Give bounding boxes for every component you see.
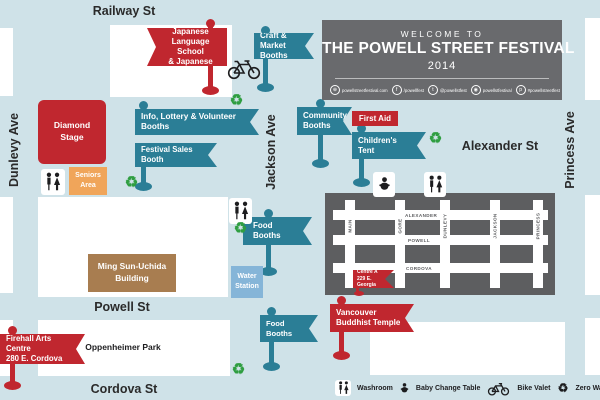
flag-firehall-arts-centre: Firehall Arts Centre 280 E. Cordova bbox=[0, 334, 85, 364]
flag-community-booths: Community Booths bbox=[297, 107, 352, 135]
water-station: Water Station bbox=[231, 266, 263, 298]
street-label-alexander: Alexander St bbox=[462, 139, 538, 153]
baby-change-icon bbox=[373, 172, 395, 197]
area-label: Ming Sun-Uchida bbox=[88, 261, 176, 273]
flag-text: Info, Lottery & Volunteer Booths bbox=[141, 112, 247, 133]
recycle-icon: ♻ bbox=[232, 220, 249, 237]
inset-neighbourhood-map: ALEXANDER POWELL CORDOVA MAIN GORE DUNLE… bbox=[325, 193, 555, 295]
bike-valet-icon bbox=[227, 57, 261, 80]
street-label-princess: Princess Ave bbox=[563, 111, 577, 189]
inset-street-label: DUNLEVY bbox=[443, 214, 448, 239]
flag-text: 229 E. Georgia bbox=[357, 276, 386, 290]
bike-valet-icon bbox=[486, 381, 511, 396]
festival-year: 2014 bbox=[322, 60, 562, 72]
flag-food-booths-lower: Food Booths bbox=[260, 315, 318, 342]
flag-centre-a: Centre A 229 E. Georgia bbox=[353, 270, 394, 288]
facebook-icon: f bbox=[392, 85, 402, 95]
flag-text: Buddhist Temple bbox=[336, 318, 402, 328]
inset-street-label: CORDOVA bbox=[406, 266, 432, 271]
legend-label: Zero Waste Station bbox=[575, 385, 600, 392]
recycle-icon: ♻ bbox=[427, 130, 444, 147]
inset-street-label: POWELL bbox=[408, 238, 430, 243]
washroom-icon bbox=[335, 380, 351, 396]
flag-text: Food Booths bbox=[266, 319, 306, 338]
hashtag-text: #powellstreetfest bbox=[528, 88, 560, 93]
diamond-stage: Diamond Stage bbox=[38, 100, 106, 164]
oppenheimer-park-label: Oppenheimer Park bbox=[85, 342, 161, 352]
flag-text: First Aid bbox=[359, 114, 391, 124]
flag-text: Vancouver bbox=[336, 308, 402, 318]
inset-street-label: GORE bbox=[398, 218, 403, 233]
street-label-cordova: Cordova St bbox=[91, 382, 158, 396]
inset-street-label: MAIN bbox=[348, 219, 353, 232]
hashtag-icon: p bbox=[516, 85, 526, 95]
city-block bbox=[0, 197, 13, 293]
flag-vancouver-buddhist-temple: Vancouver Buddhist Temple bbox=[330, 304, 414, 332]
flag-craft-market-booths: Craft & Market Booths bbox=[254, 33, 314, 59]
legend-label: Washroom bbox=[357, 385, 393, 392]
zero-waste-icon: ♻ bbox=[556, 381, 569, 395]
inset-street-label: JACKSON bbox=[493, 213, 498, 238]
area-label: Water bbox=[231, 272, 263, 282]
flag-food-booths-upper: Food Booths bbox=[243, 217, 312, 245]
inset-street-label: ALEXANDER bbox=[405, 213, 437, 218]
flag-japanese-language-school: Vancouver Japanese Language School & Jap… bbox=[147, 28, 227, 66]
recycle-icon: ♻ bbox=[228, 92, 245, 109]
divider bbox=[335, 78, 549, 79]
legend-label: Bike Valet bbox=[517, 385, 550, 392]
website-link: ⊕powellstreetfestival.com bbox=[330, 85, 388, 95]
twitter-icon: t bbox=[428, 85, 438, 95]
facebook-text: /powellfest bbox=[404, 88, 424, 93]
flag-text: 280 E. Cordova bbox=[6, 354, 73, 364]
street-label-jackson: Jackson Ave bbox=[264, 114, 278, 190]
website-text: powellstreetfestival.com bbox=[342, 88, 388, 93]
ming-sun-uchida-building: Ming Sun-Uchida Building bbox=[88, 254, 176, 292]
street-label-powell: Powell St bbox=[94, 300, 150, 314]
welcome-text: WELCOME TO bbox=[322, 29, 562, 39]
street-label-dunlevy: Dunlevy Ave bbox=[7, 113, 21, 187]
area-label: Stage bbox=[38, 132, 106, 144]
city-block bbox=[0, 28, 13, 96]
inset-street bbox=[395, 200, 405, 288]
map-legend: Washroom Baby Change Table Bike Valet ♻ … bbox=[335, 379, 600, 397]
area-label: Area bbox=[69, 181, 107, 191]
web-icon: ⊕ bbox=[330, 85, 340, 95]
washroom-icon bbox=[424, 172, 446, 197]
instagram-link: ◉powellstfestival bbox=[471, 85, 512, 95]
hashtag-link: p#powellstreetfest bbox=[516, 85, 560, 95]
area-label: Station bbox=[231, 282, 263, 292]
seniors-area: Seniors Area bbox=[69, 167, 107, 195]
flag-festival-sales-booth: Festival Sales Booth bbox=[135, 143, 217, 167]
city-block bbox=[585, 318, 600, 375]
flag-info-lottery-volunteer-booths: Info, Lottery & Volunteer Booths bbox=[135, 109, 259, 135]
legend-label: Baby Change Table bbox=[416, 385, 480, 392]
recycle-icon: ♻ bbox=[123, 174, 140, 191]
flag-text: Booths bbox=[303, 121, 340, 131]
flag-text: Craft & Market bbox=[260, 31, 302, 51]
flag-text: Children's Tent bbox=[358, 136, 414, 156]
twitter-text: @powellstfest bbox=[440, 88, 467, 93]
twitter-link: t@powellstfest bbox=[428, 85, 467, 95]
area-label: Diamond bbox=[38, 120, 106, 132]
recycle-icon: ♻ bbox=[230, 361, 247, 378]
instagram-icon: ◉ bbox=[471, 85, 481, 95]
flag-text: Firehall Arts Centre bbox=[6, 334, 73, 353]
flag-first-aid: First Aid bbox=[352, 111, 398, 126]
flag-text: Community bbox=[303, 111, 340, 121]
instagram-text: powellstfestival bbox=[483, 88, 512, 93]
washroom-icon bbox=[41, 169, 65, 195]
festival-title: THE POWELL STREET FESTIVAL bbox=[322, 40, 562, 58]
facebook-link: f/powellfest bbox=[392, 85, 424, 95]
social-links-row: ⊕powellstreetfestival.com f/powellfest t… bbox=[330, 83, 556, 97]
flag-text: Food Booths bbox=[253, 221, 300, 241]
street-label-railway: Railway St bbox=[93, 4, 156, 18]
area-label: Building bbox=[88, 273, 176, 285]
baby-change-icon bbox=[399, 382, 410, 395]
flag-childrens-tent: Children's Tent bbox=[352, 132, 426, 159]
welcome-banner: WELCOME TO THE POWELL STREET FESTIVAL 20… bbox=[322, 20, 562, 100]
flag-text: Language School bbox=[160, 37, 221, 57]
inset-street-label: PRINCESS bbox=[536, 213, 541, 240]
city-block bbox=[585, 195, 600, 295]
festival-map: Railway St Dunlevy Ave Jackson Ave Princ… bbox=[0, 0, 600, 400]
city-block bbox=[585, 18, 600, 100]
area-label: Seniors bbox=[69, 171, 107, 181]
flag-text: Festival Sales Booth bbox=[141, 145, 205, 164]
